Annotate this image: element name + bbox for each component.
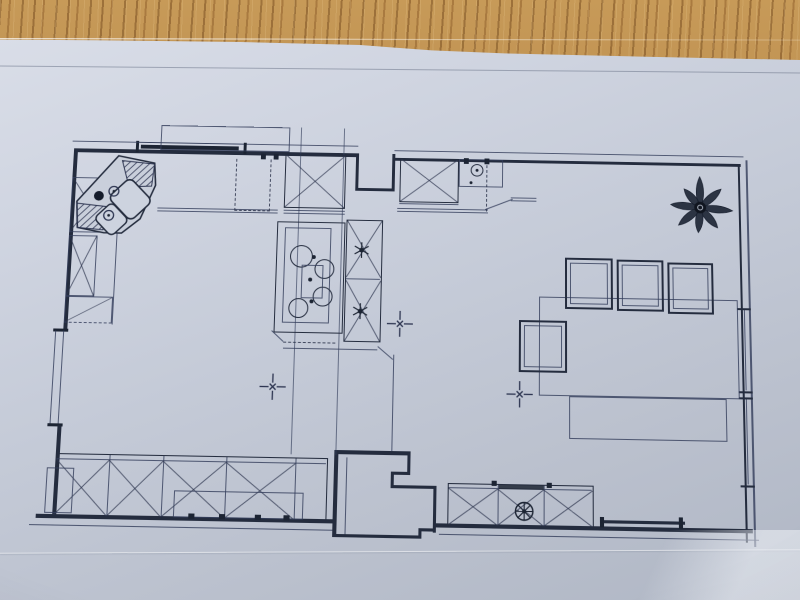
counter-front-edge	[511, 200, 537, 201]
floor-transition-line	[391, 355, 394, 451]
dining-chair	[519, 320, 567, 373]
island-cabinet	[343, 220, 383, 343]
foot-dot	[283, 515, 289, 520]
cabinet-x-section	[106, 460, 163, 517]
hinge-dot	[261, 154, 266, 160]
hinge-dot	[492, 481, 497, 486]
floor-plan	[51, 141, 759, 545]
cabinet-inner-rect	[44, 467, 74, 513]
door-threshold	[603, 520, 685, 524]
tall-cabinet-x	[284, 154, 347, 209]
hinge-dot	[274, 154, 279, 160]
counter-dashed-bottom	[283, 342, 335, 344]
dining-top-cabinet-x	[399, 158, 459, 203]
base-cabinet-x	[65, 235, 97, 296]
centerline-cross	[387, 311, 414, 337]
cabinet-shelf-line	[399, 203, 458, 205]
hinge-dot	[547, 483, 552, 488]
counter-front-edge-left	[112, 233, 118, 325]
cabinet-shelf-line	[284, 210, 345, 212]
wall-notch-left	[355, 153, 359, 190]
dishwasher-dashed	[234, 159, 271, 212]
extractor-fan-circle	[514, 501, 535, 522]
entry-recess-left	[332, 450, 338, 537]
counter-corner-cut	[485, 199, 513, 210]
dining-chair	[617, 260, 664, 312]
entry-recess-inner-line	[344, 457, 347, 534]
corner-sink	[69, 148, 164, 238]
centerline-cross	[506, 381, 532, 408]
star-mark	[352, 303, 368, 319]
plant-icon	[660, 168, 740, 247]
star-mark	[354, 242, 370, 258]
photo-stage	[0, 0, 800, 600]
cabinet-x-section	[448, 488, 497, 525]
counter-bottom-edge	[283, 348, 377, 351]
hinge-dot	[484, 158, 489, 164]
foot-dot	[219, 514, 225, 519]
dining-chair	[667, 262, 714, 314]
entry-recess-top	[334, 450, 410, 456]
foot-dot	[255, 515, 261, 520]
door-threshold-tab	[600, 517, 604, 528]
wall-bottom-left-outer	[29, 524, 332, 531]
corner-cabinet-diagonal	[64, 296, 113, 324]
window-frame-cap	[741, 485, 755, 487]
counter-front-edge	[397, 211, 488, 214]
centerline-cross	[259, 373, 286, 400]
counter-front-edge	[511, 197, 537, 198]
dining-chair	[565, 258, 613, 310]
wall-notch-bottom	[355, 188, 394, 192]
cabinet-shelf-line	[284, 213, 345, 215]
entry-step	[391, 485, 437, 489]
cabinet-x-section	[544, 490, 593, 527]
window-frame-cap	[739, 391, 753, 393]
wall-top-right-outer	[394, 150, 743, 157]
hinge-dot	[464, 158, 469, 164]
paper-corner-highlight	[560, 530, 800, 600]
counter-corner-cut	[377, 346, 393, 360]
counter-dashed-edge	[486, 165, 487, 211]
dining-bench	[569, 396, 727, 442]
appliance-dot	[476, 169, 479, 172]
appliance-dot	[470, 181, 473, 184]
door-threshold-tab	[679, 517, 683, 529]
cooktop-inner-rect	[301, 265, 324, 299]
foot-dot	[188, 513, 194, 518]
wall-unit-overlay	[160, 125, 290, 152]
